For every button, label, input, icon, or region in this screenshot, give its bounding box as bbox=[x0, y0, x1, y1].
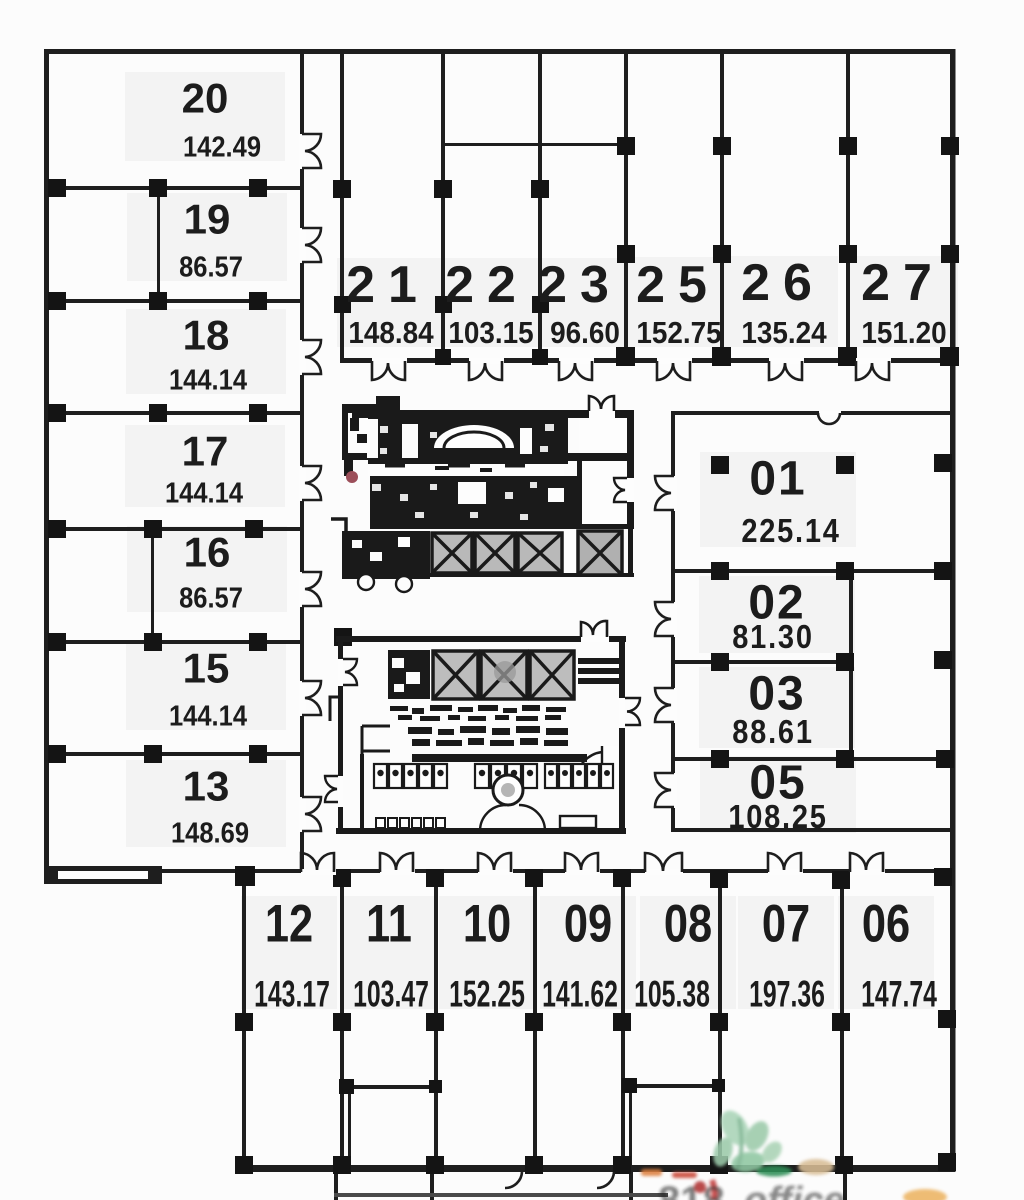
svg-text:152.75: 152.75 bbox=[636, 316, 721, 351]
svg-text:27: 27 bbox=[861, 254, 945, 312]
svg-text:22: 22 bbox=[445, 256, 529, 314]
svg-text:17: 17 bbox=[182, 428, 229, 475]
svg-text:96.60: 96.60 bbox=[550, 316, 620, 351]
svg-text:141.62: 141.62 bbox=[542, 972, 618, 1014]
svg-text:11: 11 bbox=[366, 894, 412, 953]
svg-text:818: 818 bbox=[658, 1179, 725, 1200]
svg-text:10: 10 bbox=[463, 894, 511, 953]
svg-text:08: 08 bbox=[664, 894, 712, 953]
svg-text:07: 07 bbox=[762, 894, 810, 953]
svg-text:23: 23 bbox=[538, 256, 622, 314]
svg-text:144.14: 144.14 bbox=[169, 363, 248, 396]
svg-text:19: 19 bbox=[184, 196, 231, 243]
svg-text:20: 20 bbox=[182, 75, 229, 122]
svg-text:01: 01 bbox=[749, 453, 806, 506]
svg-text:25: 25 bbox=[636, 256, 720, 314]
svg-text:18: 18 bbox=[183, 312, 230, 359]
svg-text:105.38: 105.38 bbox=[634, 972, 710, 1014]
svg-text:142.49: 142.49 bbox=[183, 130, 261, 163]
svg-text:88.61: 88.61 bbox=[732, 713, 813, 750]
svg-text:13: 13 bbox=[183, 763, 230, 810]
svg-text:152.25: 152.25 bbox=[449, 972, 525, 1014]
svg-text:148.69: 148.69 bbox=[171, 816, 249, 849]
svg-text:143.17: 143.17 bbox=[254, 972, 330, 1014]
svg-text:26: 26 bbox=[741, 254, 825, 312]
svg-text:86.57: 86.57 bbox=[179, 581, 243, 614]
svg-text:103.47: 103.47 bbox=[353, 972, 429, 1014]
svg-text:06: 06 bbox=[862, 894, 910, 953]
svg-text:135.24: 135.24 bbox=[741, 316, 827, 351]
svg-text:15: 15 bbox=[183, 645, 230, 692]
svg-text:16: 16 bbox=[184, 529, 231, 576]
svg-text:09: 09 bbox=[564, 894, 612, 953]
svg-text:197.36: 197.36 bbox=[749, 972, 825, 1014]
svg-text:108.25: 108.25 bbox=[728, 798, 827, 835]
svg-text:151.20: 151.20 bbox=[861, 316, 946, 351]
svg-text:225.14: 225.14 bbox=[741, 512, 840, 549]
svg-text:103.15: 103.15 bbox=[448, 316, 533, 351]
svg-text:147.74: 147.74 bbox=[861, 972, 937, 1014]
svg-text:144.14: 144.14 bbox=[165, 476, 244, 509]
svg-text:144.14: 144.14 bbox=[169, 699, 248, 732]
svg-text:12: 12 bbox=[265, 894, 313, 953]
svg-text:81.30: 81.30 bbox=[732, 618, 813, 655]
svg-text:21: 21 bbox=[346, 256, 430, 314]
svg-text:office: office bbox=[744, 1180, 845, 1200]
svg-text:86.57: 86.57 bbox=[179, 250, 243, 283]
svg-text:148.84: 148.84 bbox=[348, 316, 434, 351]
